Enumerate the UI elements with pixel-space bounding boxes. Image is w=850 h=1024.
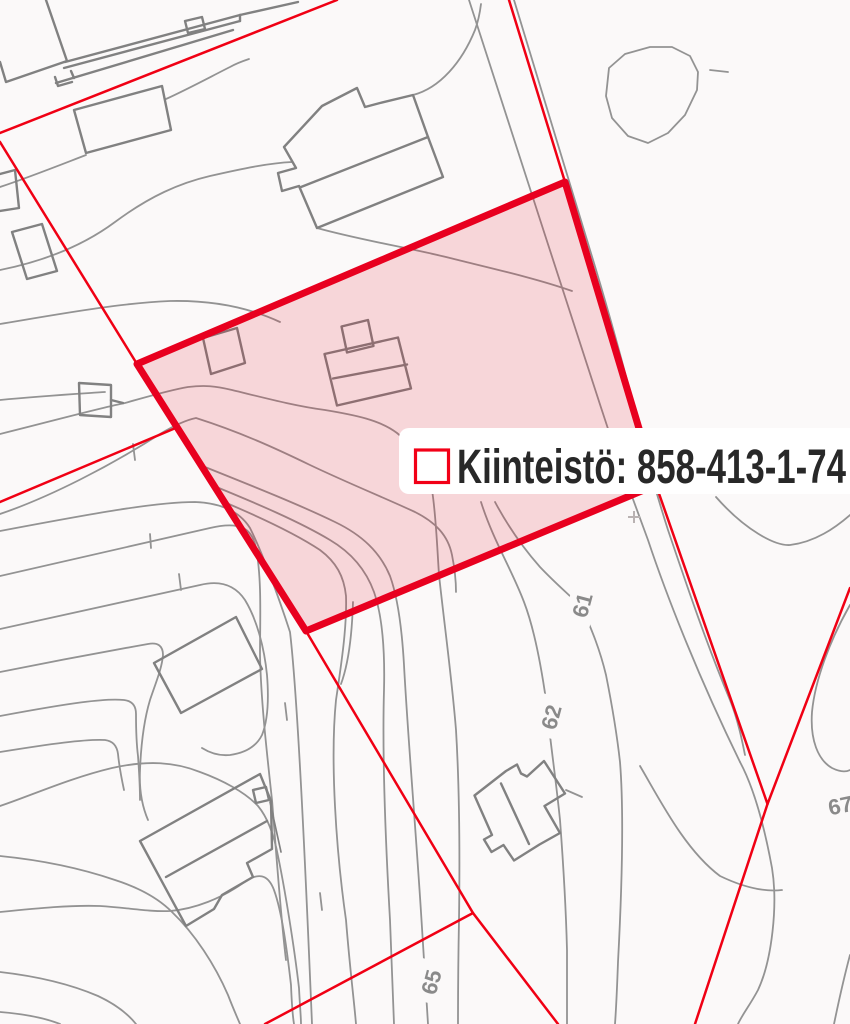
svg-text:Kiinteistö: 858-413-1-74: Kiinteistö: 858-413-1-74	[457, 441, 846, 494]
svg-text:67: 67	[826, 791, 850, 821]
